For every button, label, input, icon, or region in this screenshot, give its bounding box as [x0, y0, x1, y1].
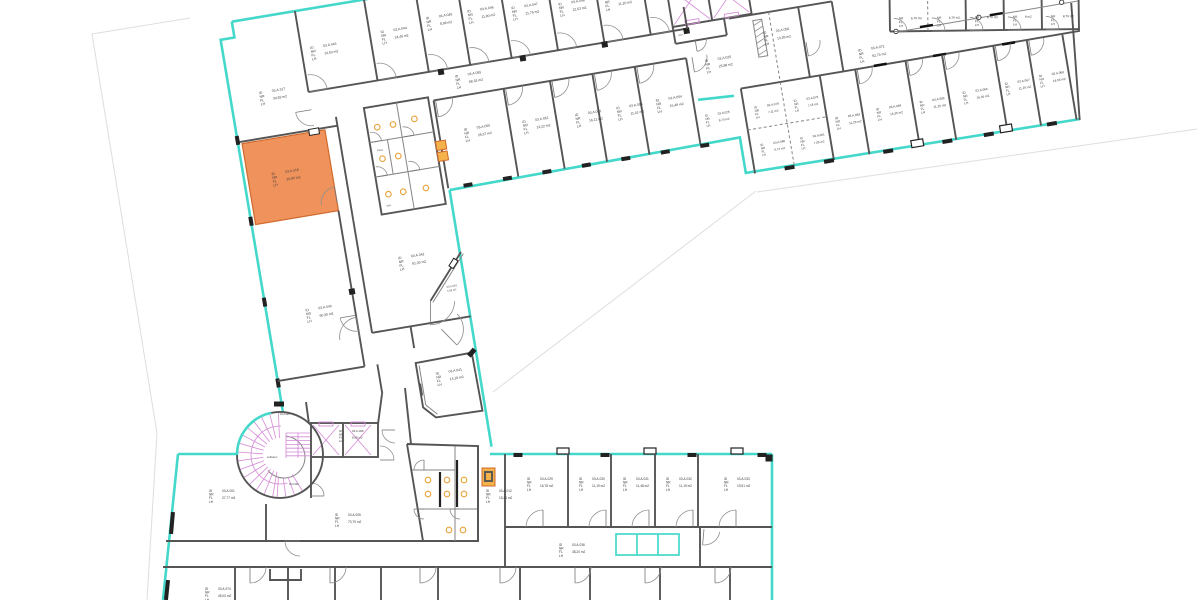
svg-text:8,79 m2: 8,79 m2: [1063, 14, 1075, 18]
svg-text:8 m2: 8 m2: [1025, 15, 1032, 19]
svg-text:Luftraum: Luftraum: [267, 455, 277, 459]
svg-text:6,79 m2: 6,79 m2: [949, 16, 961, 20]
svg-text:8,79 m2: 8,79 m2: [987, 15, 999, 19]
svg-text:6,79 m2: 6,79 m2: [911, 16, 923, 20]
svg-text:03.A.002: 03.A.002: [289, 483, 299, 486]
svg-text:03.A.003: 03.A.003: [280, 413, 290, 416]
